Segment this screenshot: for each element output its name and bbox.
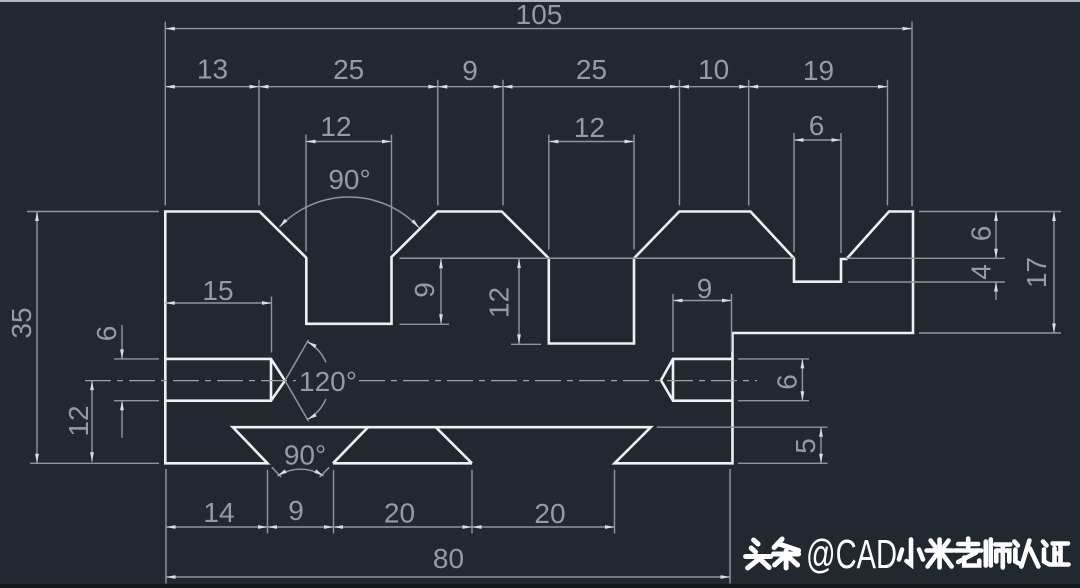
svg-text:90°: 90° (328, 164, 370, 195)
svg-text:12: 12 (574, 112, 605, 143)
svg-text:15: 15 (202, 275, 233, 306)
svg-text:9: 9 (288, 495, 304, 526)
svg-text:35: 35 (6, 307, 37, 338)
svg-text:6: 6 (91, 326, 122, 342)
svg-text:20: 20 (534, 498, 565, 529)
svg-text:20: 20 (384, 498, 415, 529)
svg-text:9: 9 (697, 273, 713, 304)
svg-text:17: 17 (1021, 257, 1052, 288)
svg-text:4: 4 (966, 264, 997, 280)
svg-text:12: 12 (320, 111, 351, 142)
svg-text:90°: 90° (284, 440, 326, 471)
svg-text:80: 80 (433, 543, 464, 574)
svg-text:9: 9 (409, 282, 440, 298)
svg-text:9: 9 (462, 55, 478, 86)
svg-text:25: 25 (576, 54, 607, 85)
svg-text:19: 19 (803, 55, 834, 86)
svg-text:120°: 120° (299, 366, 357, 397)
svg-text:6: 6 (809, 110, 825, 141)
svg-text:12: 12 (484, 287, 515, 318)
svg-text:@CAD: @CAD (806, 532, 897, 577)
svg-text:6: 6 (771, 374, 802, 390)
svg-text:105: 105 (516, 0, 563, 30)
svg-text:13: 13 (197, 54, 228, 85)
svg-text:14: 14 (203, 497, 234, 528)
svg-text:10: 10 (698, 54, 729, 85)
svg-text:12: 12 (63, 405, 94, 436)
svg-text:5: 5 (790, 438, 821, 454)
svg-text:6: 6 (966, 226, 997, 242)
svg-text:25: 25 (333, 54, 364, 85)
